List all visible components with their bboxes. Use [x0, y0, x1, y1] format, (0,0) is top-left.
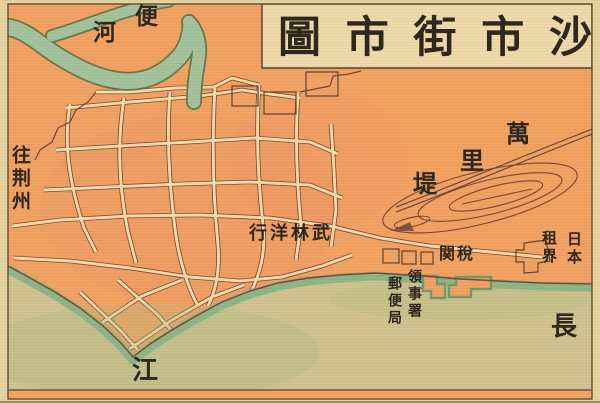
bottom-margin	[8, 390, 592, 399]
label-wanlidi-char-di: 堤	[413, 172, 437, 196]
label-yangtze-char-chang: 長	[551, 314, 577, 340]
label-to-jingzhou: 往荆州	[10, 145, 29, 214]
map-title: 圖 市 街 市 沙	[270, 12, 600, 64]
label-post-office: 郵便局	[387, 276, 401, 327]
label-wanlidi-char-li: 里	[460, 149, 484, 173]
title-char: 圖	[278, 17, 321, 60]
label-bianhe-char-he: 河	[93, 21, 116, 44]
title-char: 沙	[549, 17, 592, 60]
title-char: 市	[346, 17, 389, 60]
label-japan: 日本	[566, 231, 581, 267]
label-yangtze-char-jiang: 江	[132, 358, 158, 384]
label-consulate: 領事署	[407, 269, 421, 320]
label-customs: 関稅	[439, 246, 475, 262]
label-wanlidi-char-wan: 萬	[506, 122, 530, 146]
title-char: 街	[414, 17, 457, 60]
label-concession: 租界	[541, 230, 556, 266]
label-wulin-yanghang: 行洋林武	[249, 225, 333, 243]
shashi-street-map: 圖 市 街 市 沙 便 河 往荆州 行洋林武 萬 里 堤 関稅 日本 租界 領事…	[0, 0, 600, 404]
title-char: 市	[481, 17, 524, 60]
label-bianhe-char-bian: 便	[135, 5, 158, 28]
